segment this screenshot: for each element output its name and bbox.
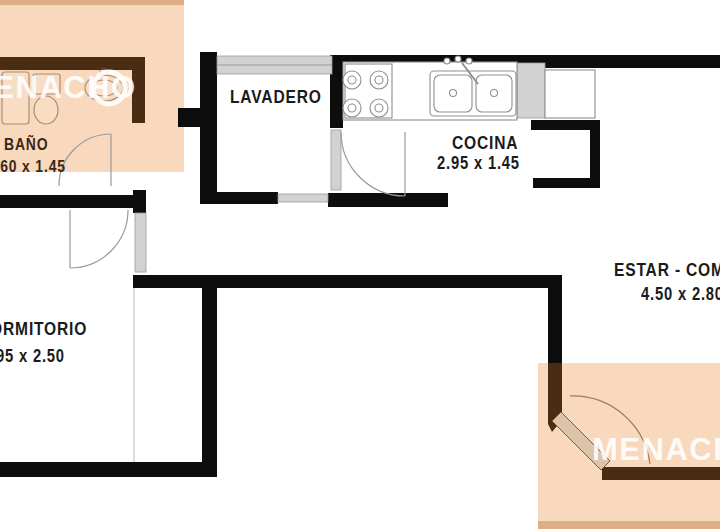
room-dims-estar: 4.50 x 2.80 bbox=[641, 284, 720, 305]
room-label-estar: ESTAR - COMEDOR bbox=[614, 259, 720, 281]
room-dims-dormitorio: 2.95 x 2.50 bbox=[0, 346, 65, 367]
room-label-cocina: COCINA bbox=[452, 132, 518, 154]
bedroom-door bbox=[70, 210, 128, 268]
stove-icon bbox=[343, 64, 392, 118]
watermark-logo-ring bbox=[0, 0, 184, 172]
room-label-lavadero: LAVADERO bbox=[230, 86, 322, 108]
room-label-dormitorio: DORMITORIO bbox=[0, 318, 87, 340]
watermark-brand-text-bottom-right: MENACHO bbox=[592, 432, 720, 468]
fridge-icon bbox=[545, 70, 595, 118]
room-dims-cocina: 2.95 x 1.45 bbox=[437, 153, 520, 174]
floorplan-canvas: MENACHO MENACHO bbox=[0, 0, 720, 532]
kitchen-door bbox=[341, 132, 405, 196]
